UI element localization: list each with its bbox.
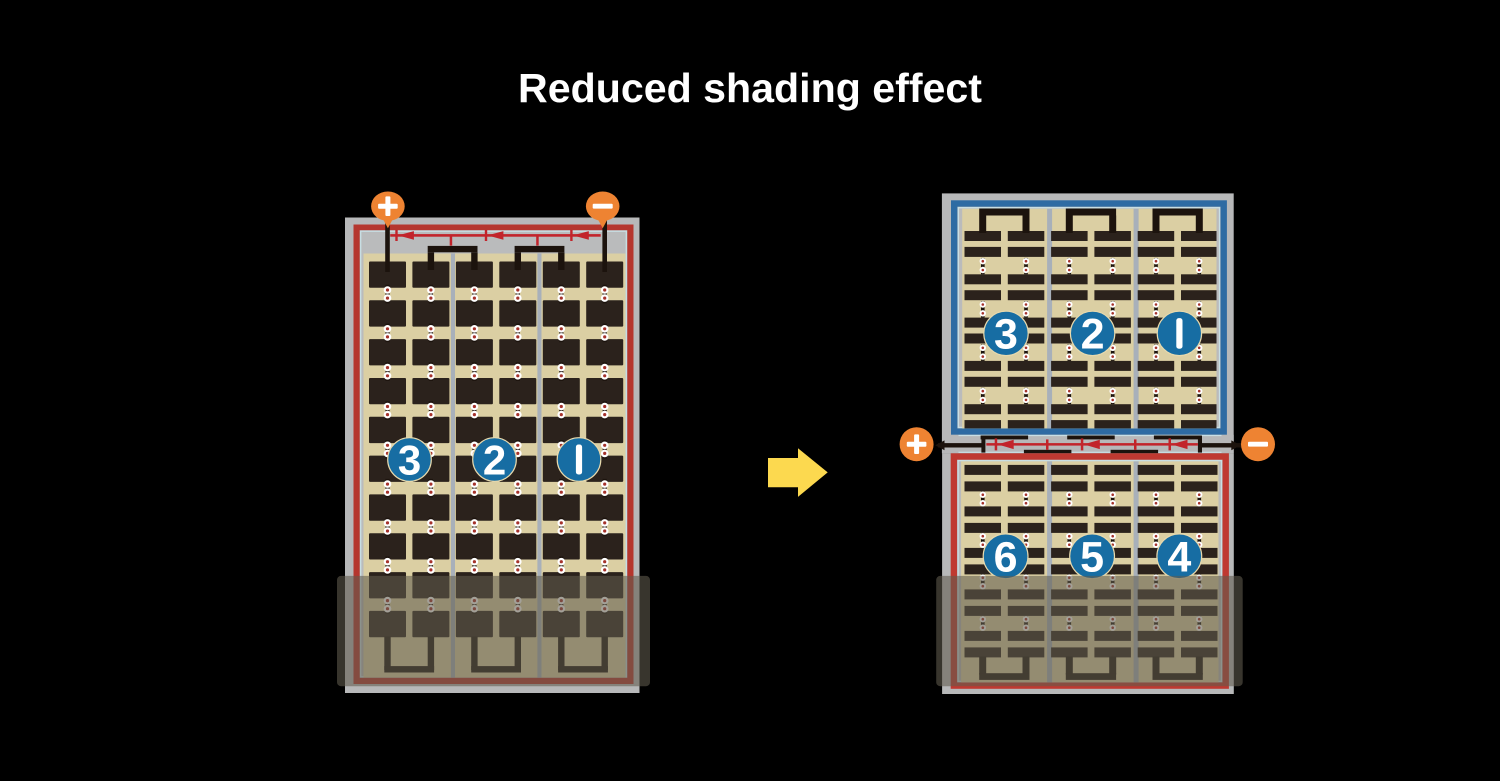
svg-text:2: 2 [483,437,506,484]
svg-text:3: 3 [398,437,421,484]
svg-text:2: 2 [1081,311,1105,359]
svg-text:Reduced shading effect: Reduced shading effect [518,65,982,111]
svg-text:4: 4 [1167,534,1191,582]
svg-text:3: 3 [994,311,1018,359]
svg-text:5: 5 [1080,534,1104,582]
svg-text:6: 6 [994,534,1018,582]
